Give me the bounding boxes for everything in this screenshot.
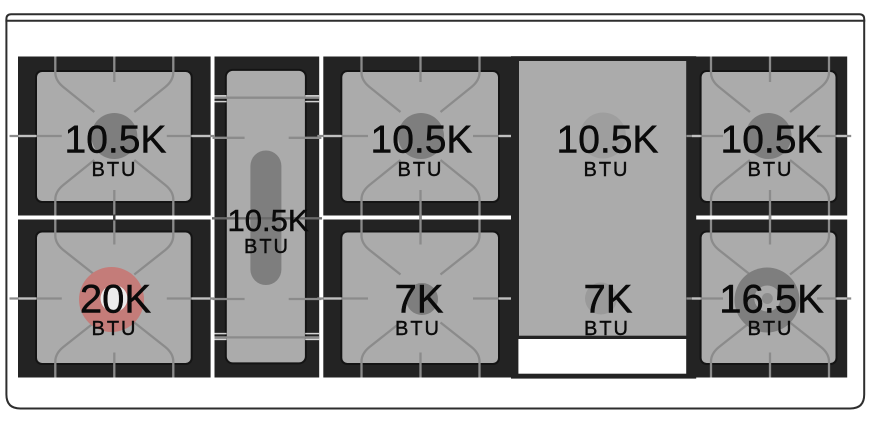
svg-text:7K: 7K — [584, 278, 633, 322]
svg-text:BTU: BTU — [244, 236, 290, 258]
svg-text:10.5K: 10.5K — [65, 119, 167, 162]
svg-text:10.5K: 10.5K — [371, 119, 473, 162]
svg-text:BTU: BTU — [748, 318, 794, 340]
svg-text:7K: 7K — [395, 278, 444, 322]
svg-text:BTU: BTU — [398, 159, 444, 181]
svg-text:BTU: BTU — [584, 159, 630, 181]
svg-text:BTU: BTU — [92, 159, 138, 181]
svg-text:BTU: BTU — [584, 318, 630, 340]
svg-text:20K: 20K — [80, 278, 151, 322]
svg-text:BTU: BTU — [395, 318, 441, 340]
svg-text:10.5K: 10.5K — [227, 203, 308, 238]
svg-text:10.5K: 10.5K — [721, 119, 823, 162]
svg-text:16.5K: 16.5K — [719, 278, 824, 322]
svg-text:BTU: BTU — [92, 318, 138, 340]
svg-text:10.5K: 10.5K — [557, 119, 659, 162]
svg-text:BTU: BTU — [748, 159, 794, 181]
